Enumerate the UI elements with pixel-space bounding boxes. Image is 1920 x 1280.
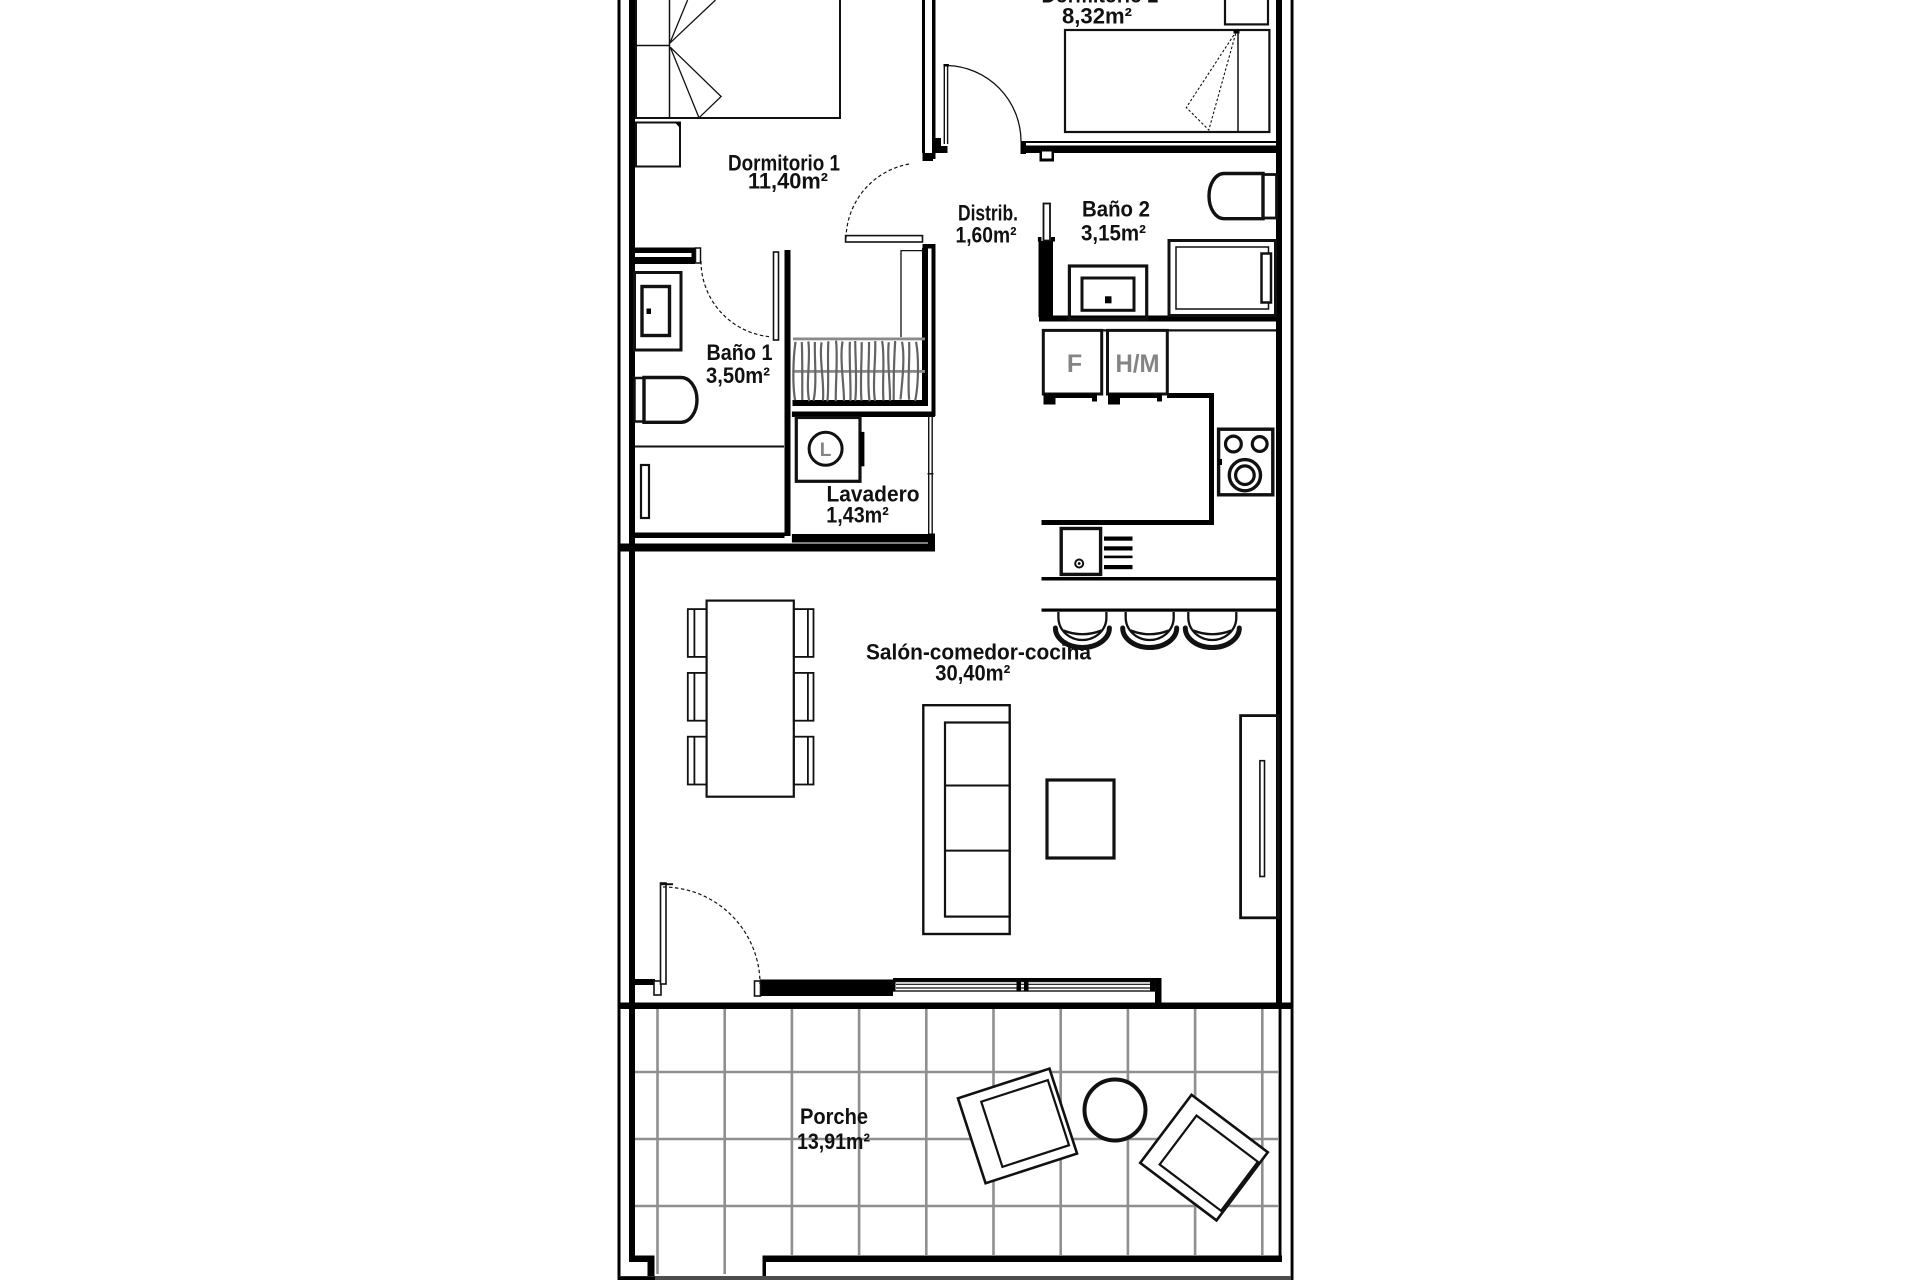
svg-text:11,40m²: 11,40m²: [748, 169, 828, 194]
svg-text:1,60m²: 1,60m²: [956, 223, 1017, 248]
svg-text:13,91m²: 13,91m²: [797, 1129, 870, 1154]
svg-text:30,40m²: 30,40m²: [935, 661, 1010, 686]
svg-text:H/M: H/M: [1116, 350, 1160, 378]
svg-text:F: F: [1067, 350, 1082, 378]
svg-text:Baño 2: Baño 2: [1082, 197, 1150, 222]
svg-text:Porche: Porche: [800, 1104, 868, 1129]
svg-text:8,32m²: 8,32m²: [1062, 4, 1132, 29]
svg-text:3,15m²: 3,15m²: [1081, 221, 1146, 246]
svg-text:L: L: [820, 440, 832, 461]
svg-text:3,50m²: 3,50m²: [706, 363, 770, 388]
svg-text:Baño 1: Baño 1: [707, 340, 773, 365]
svg-text:1,43m²: 1,43m²: [826, 503, 889, 528]
